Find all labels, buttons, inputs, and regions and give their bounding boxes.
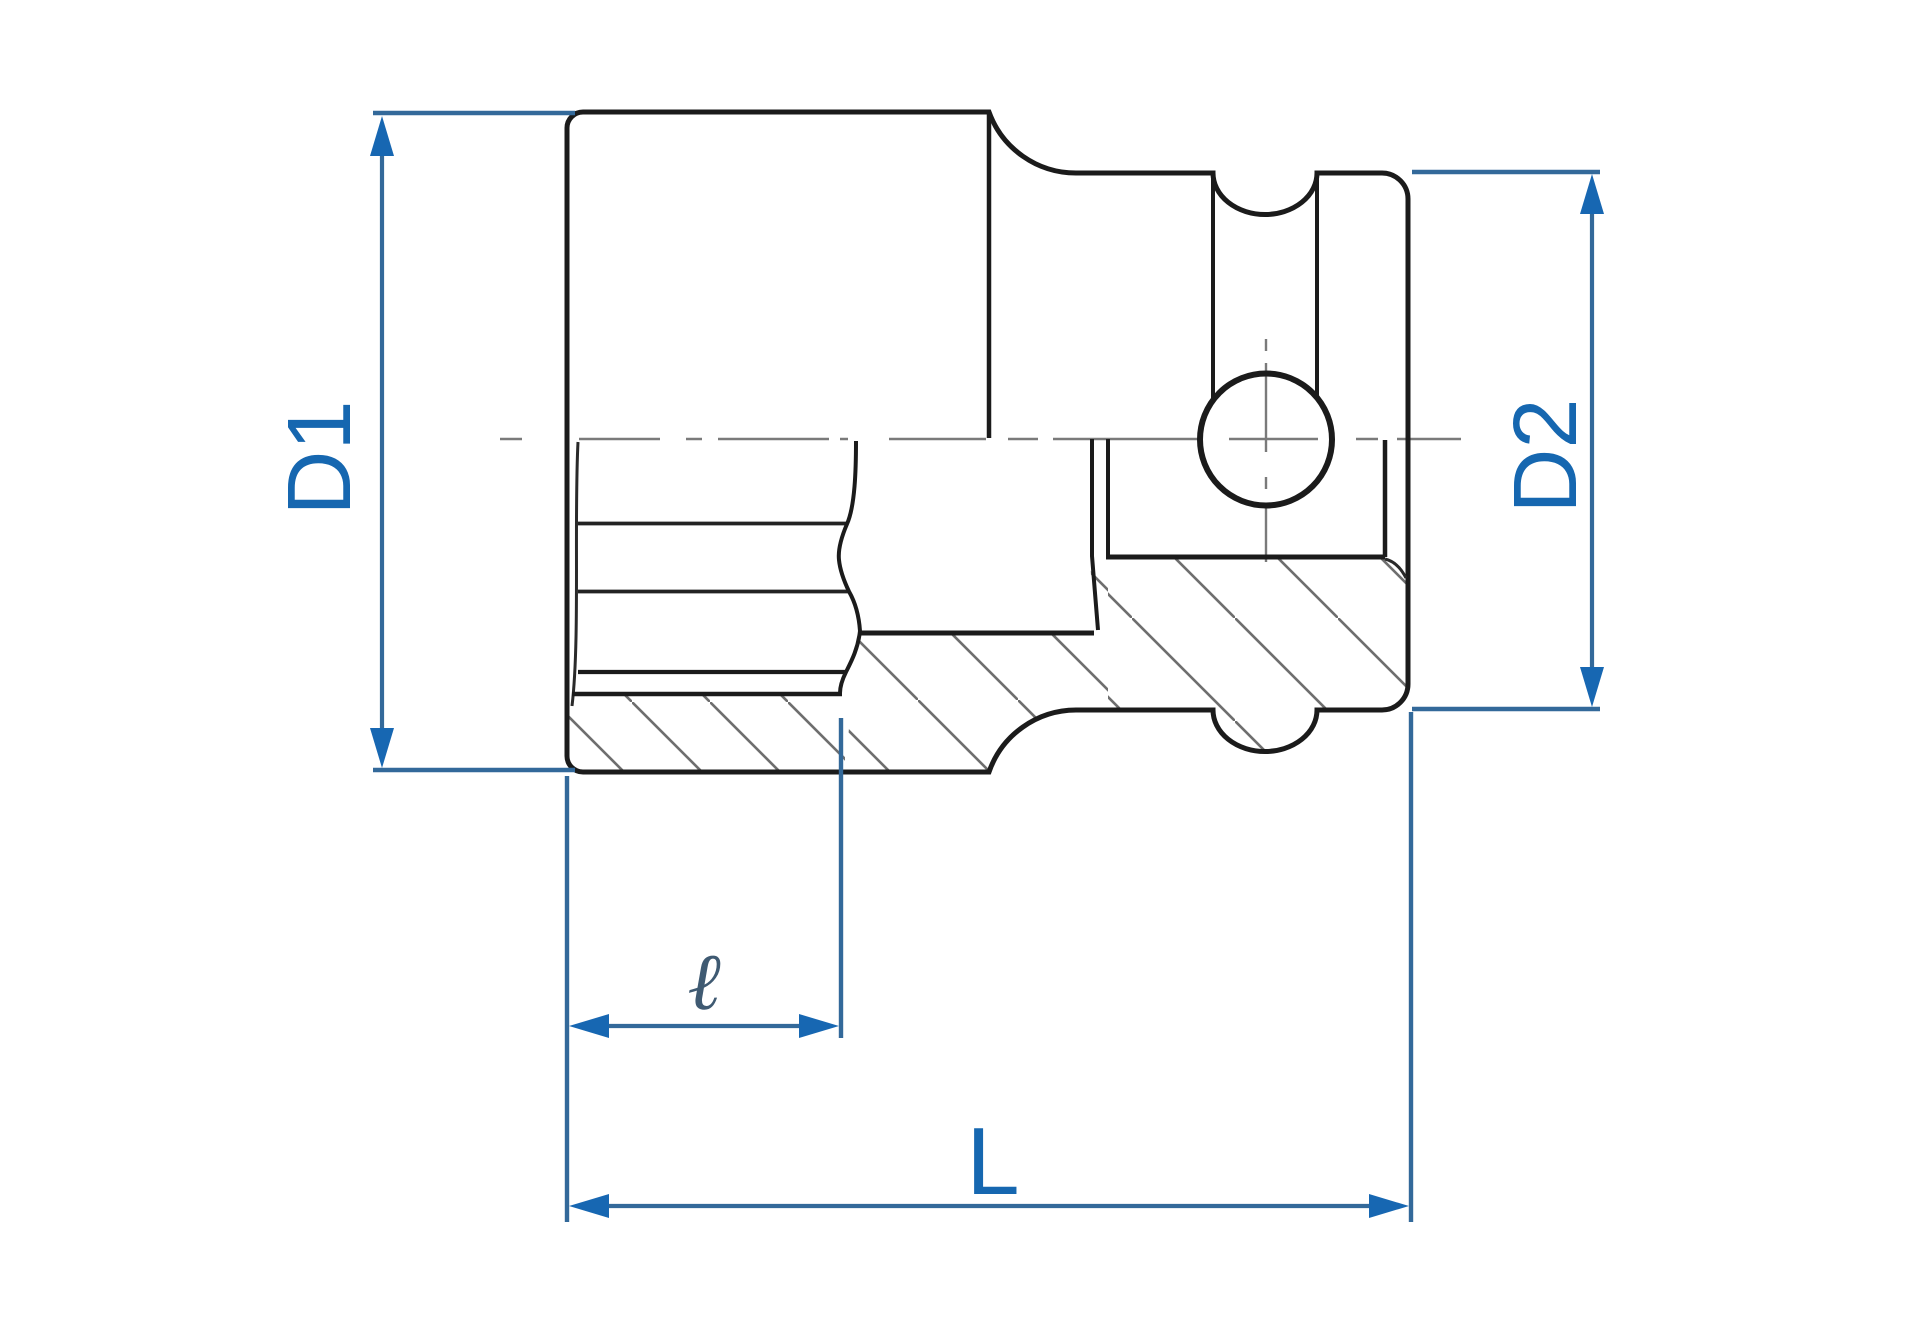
svg-text:D2: D2: [1496, 398, 1596, 513]
svg-text:L: L: [966, 1108, 1019, 1215]
svg-text:ℓ: ℓ: [687, 939, 720, 1027]
svg-text:D1: D1: [270, 400, 370, 515]
